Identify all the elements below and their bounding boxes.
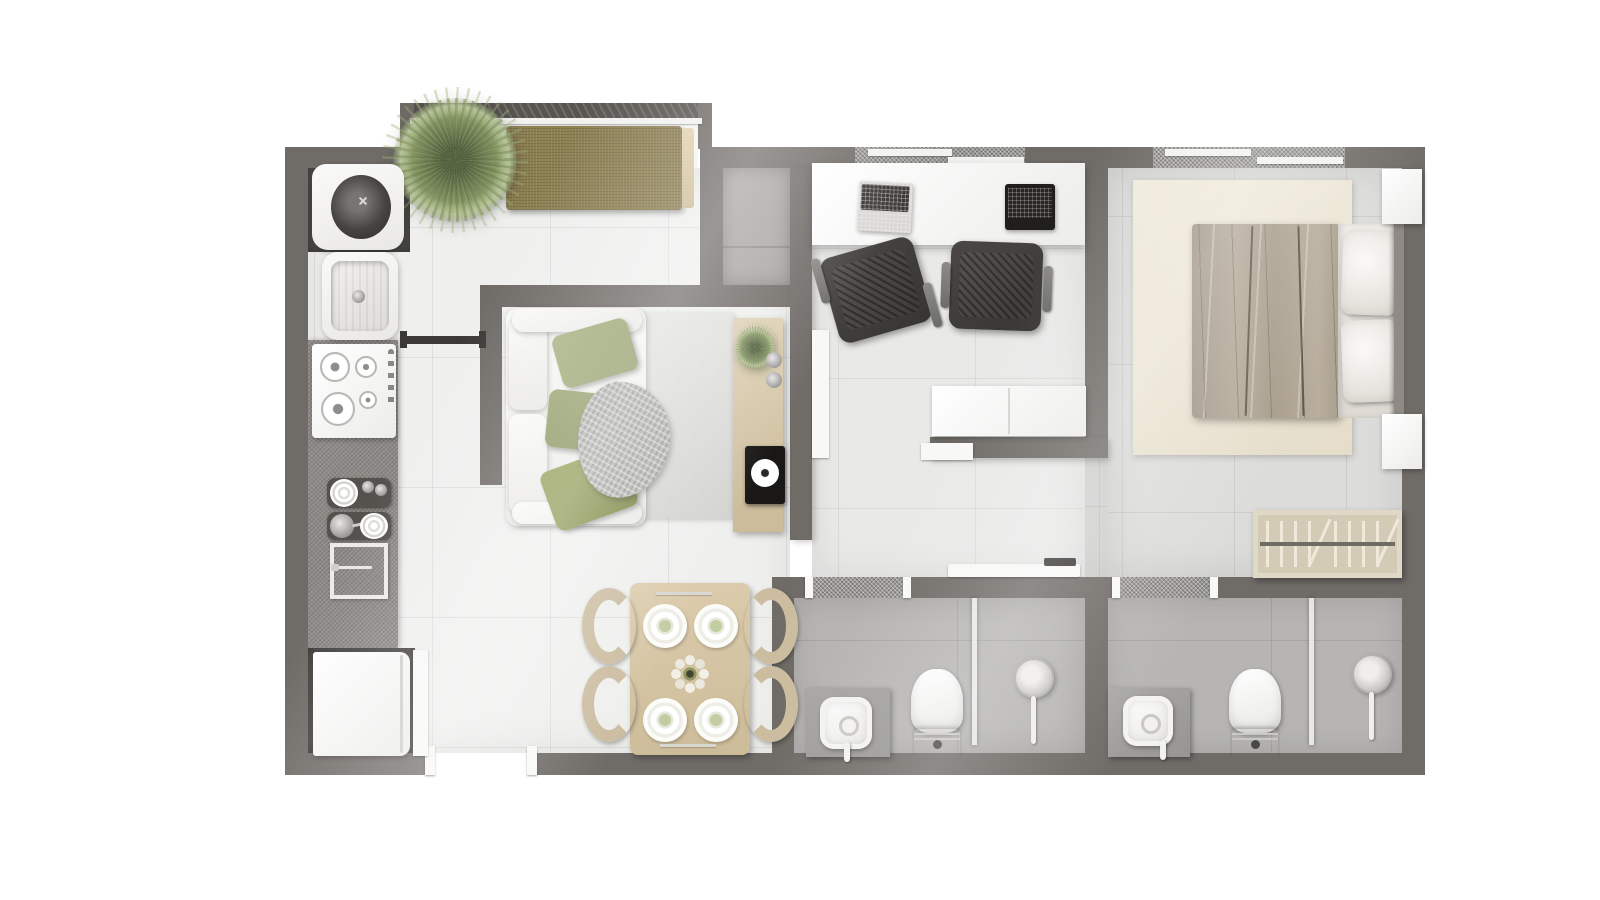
office-chair-2-arm-right (1042, 266, 1053, 312)
place-setting-2 (694, 604, 738, 648)
cooktop-knobs (388, 349, 394, 407)
decor-object-1 (766, 352, 782, 368)
bath1-shower-head (1014, 658, 1054, 698)
exterior-wall-bottom-right (537, 753, 1425, 775)
bench-wood-edge (682, 128, 694, 208)
bed-pillow-top (1341, 230, 1400, 316)
burner-1 (320, 352, 350, 382)
slider-cap-right (479, 331, 486, 348)
bedroom-door-leaf (921, 443, 973, 460)
shaft-floor (723, 168, 790, 285)
frying-pan (330, 514, 354, 538)
burner-2 (355, 356, 377, 378)
office-window-frame-a (868, 149, 952, 156)
balcony-bench (506, 126, 682, 210)
bath2-window-jamb-right (1210, 577, 1218, 598)
bath1-faucet (844, 742, 850, 762)
bedroom-floor-strip (1085, 458, 1108, 577)
bath2-shower-stem (1369, 692, 1374, 740)
bath1-glass-partition (972, 598, 977, 745)
bowl-2 (375, 484, 387, 496)
dining-chair-4 (744, 666, 798, 742)
burner-4 (359, 391, 377, 409)
record-disc (751, 459, 779, 487)
tv-wall (790, 168, 812, 540)
bath1-shower-stem (1031, 696, 1036, 744)
bath1-toilet (911, 669, 963, 733)
washer-drum (331, 175, 391, 239)
cutlery-bottom (660, 744, 716, 747)
balcony-plant (393, 98, 517, 222)
shaft-floor-seam (723, 246, 790, 248)
bath2-window-jamb-left (1112, 577, 1120, 598)
dining-chair-1 (582, 588, 636, 664)
bath2-sink (1123, 696, 1173, 746)
kitchen-sliding-panel (402, 336, 486, 344)
dining-chair-2 (582, 666, 636, 742)
nightstand-top (1382, 169, 1422, 224)
bath1-sliding-door-handle (1044, 558, 1076, 566)
balcony-post-right (698, 103, 712, 149)
plate-stack-2 (360, 513, 388, 539)
sofa-partition-v (480, 285, 502, 485)
exterior-wall-bottom-left (285, 753, 425, 775)
office-chair-2-arm-left (940, 262, 951, 308)
wardrobe-rail (1260, 542, 1395, 546)
fridge-door-line (400, 655, 403, 753)
bedroom-window-frame-a (1165, 149, 1251, 156)
duvet-creases (1192, 224, 1340, 418)
exterior-wall-left (285, 147, 308, 775)
bath2-toilet (1229, 669, 1281, 733)
sofa-partition-h (480, 285, 704, 307)
bath1-window-jamb-left (805, 577, 813, 598)
flower-centerpiece (667, 651, 713, 697)
place-setting-1 (643, 604, 687, 648)
bath2-faucet (1160, 740, 1166, 760)
bedroom-window-frame-b (1257, 157, 1343, 164)
bath-wall-c (1218, 577, 1425, 598)
laptop-black-keys (1008, 188, 1052, 218)
plate-stack (330, 479, 358, 507)
bath1-window-jamb-right (903, 577, 911, 598)
dining-chair-3 (744, 588, 798, 664)
bath-divider-wall (1085, 577, 1108, 775)
entry-jamb-right (527, 746, 537, 775)
knife (336, 566, 372, 569)
bath-wall-b (911, 577, 1114, 598)
bed-headboard (1394, 222, 1404, 420)
wardrobe (1253, 510, 1402, 578)
bowl-1 (362, 481, 374, 493)
bath1-frosted-strip (813, 577, 903, 598)
slider-cap-left (400, 331, 407, 348)
office-chair-2 (948, 240, 1043, 331)
nightstand-bottom (1382, 414, 1422, 469)
office-door-leaf (812, 330, 829, 458)
kitchen-door-leaf (413, 650, 428, 756)
office-cabinet-divider (1008, 388, 1010, 434)
laptop-silver-keyboard (860, 184, 909, 212)
knife-handle (331, 564, 339, 571)
bedroom-wall-vertical (1085, 168, 1108, 458)
bath2-frosted-strip (1120, 577, 1210, 598)
floor-plan (0, 0, 1600, 900)
sink-drain (352, 290, 365, 303)
bath1-flush-button (933, 740, 942, 749)
bath2-flush-button (1251, 740, 1260, 749)
bath2-shower-head (1352, 654, 1392, 694)
sofa-back-cushion-2 (509, 414, 547, 514)
place-setting-3 (643, 698, 687, 742)
decor-object-2 (766, 372, 782, 388)
bed-pillow-bottom (1341, 319, 1400, 403)
cutlery-top (656, 592, 712, 595)
place-setting-4 (694, 698, 738, 742)
cutting-board (330, 543, 388, 599)
refrigerator (313, 652, 410, 756)
bath2-glass-partition (1309, 598, 1314, 745)
burner-3 (321, 392, 355, 426)
